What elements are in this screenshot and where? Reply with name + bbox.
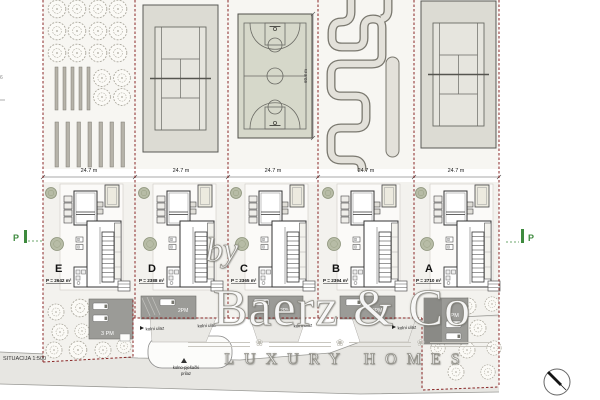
watermark-tagline: LUXURY HOMES <box>160 351 524 369</box>
watermark-ornament <box>188 338 492 350</box>
parking-marker-west: P <box>13 230 42 243</box>
plot-width-dimensions: 24.7 m 24.7 m 24.7 m 24.7 m 24.7 m <box>41 168 501 179</box>
scale-label: SITUACIJA 1:500 <box>3 356 46 362</box>
villa-label-d: D <box>148 263 156 275</box>
plot-width-dim-2: 24.7 m <box>173 168 190 174</box>
flower-ornament-icon <box>255 339 263 349</box>
tennis-court-west <box>143 5 218 152</box>
watermark-name: Baerz & Co <box>148 282 536 337</box>
parking-marker-east: P <box>506 229 534 243</box>
flower-ornament-icon <box>336 339 344 349</box>
ornament-line <box>349 342 411 347</box>
entrance-arrow-icon-1 <box>140 326 144 330</box>
plot-width-dim-1: 24.7 m <box>81 168 98 174</box>
court-height-label: 60.8 m <box>303 69 308 83</box>
ornament-line <box>430 342 492 347</box>
plot-width-dim-5: 24.7 m <box>448 168 465 174</box>
villa-area-e: P = 2642 m² <box>46 278 72 283</box>
basketball-court <box>238 14 312 138</box>
parking-marker-west-label: P <box>13 233 19 243</box>
pedestrian-label-line2: prilaz <box>181 371 191 376</box>
ornament-line <box>269 342 331 347</box>
flower-ornament-icon <box>416 339 424 349</box>
ornament-line <box>188 342 250 347</box>
north-compass-icon <box>544 369 570 395</box>
villa-label-a: A <box>425 263 433 275</box>
villa-label-e: E <box>55 263 62 275</box>
tennis-court-east <box>421 1 496 148</box>
site-plan-page: 60.8 m 24.7 m 24.7 m 24.7 m 24.7 m 24.7 … <box>0 0 600 400</box>
parking-marker-east-label: P <box>528 233 534 243</box>
plot-width-dim-3: 24.7 m <box>265 168 282 174</box>
parking-area-e: 3 PM <box>89 299 133 341</box>
parking-label-e: 3 PM <box>101 331 114 337</box>
watermark-by: by <box>206 232 286 270</box>
edge-note: 6 <box>0 75 3 81</box>
plot-width-dim-4: 24.7 m <box>358 168 375 174</box>
villa-label-b: B <box>332 263 340 275</box>
